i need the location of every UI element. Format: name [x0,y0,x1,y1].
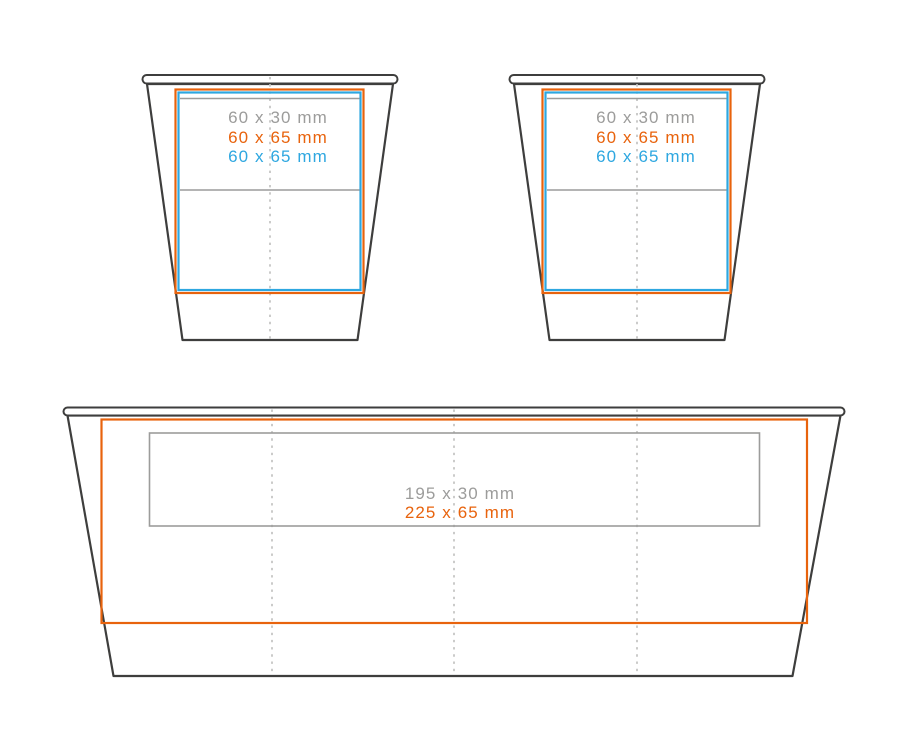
print-size-label-gray: 195 x 30 mm [405,484,515,504]
print-size-label-orange: 60 x 65 mm [596,128,696,148]
cup-large-unwrap [64,408,845,677]
print-template-diagram: 60 x 30 mm 60 x 65 mm 60 x 65 mm 60 x 30… [0,0,900,741]
print-size-label-gray: 60 x 30 mm [228,108,328,128]
print-size-label-blue: 60 x 65 mm [228,147,328,167]
cup-large-labels: 195 x 30 mm 225 x 65 mm [405,484,515,523]
print-size-label-gray: 60 x 30 mm [596,108,696,128]
print-size-label-orange: 225 x 65 mm [405,503,515,523]
cup-small-right-labels: 60 x 30 mm 60 x 65 mm 60 x 65 mm [596,108,696,167]
template-drawing [0,0,900,741]
print-size-label-blue: 60 x 65 mm [596,147,696,167]
cup-small-left-labels: 60 x 30 mm 60 x 65 mm 60 x 65 mm [228,108,328,167]
print-size-label-orange: 60 x 65 mm [228,128,328,148]
